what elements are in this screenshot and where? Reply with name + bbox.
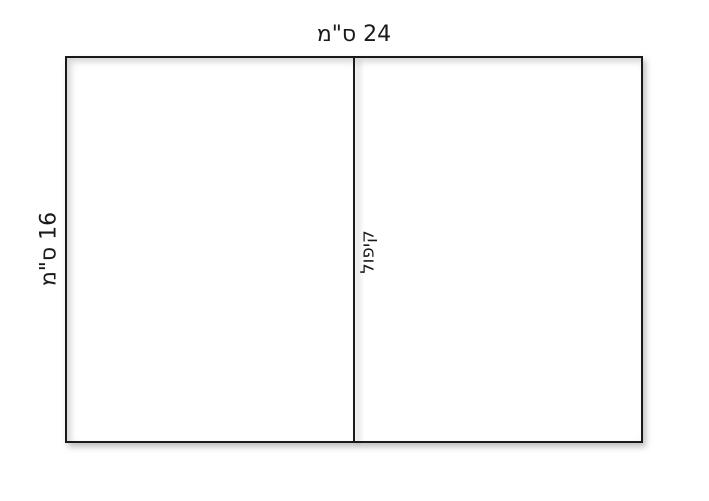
fold-line [353,58,355,441]
rectangle-shape [65,56,643,443]
width-dimension-label: 24 ס"מ [65,22,643,48]
height-dimension-label: 16 ס"מ [37,212,62,286]
fold-line-label: קיפול [358,230,379,273]
rectangle-fold-diagram: 24 ס"מ 16 ס"מ קיפול [0,0,709,501]
